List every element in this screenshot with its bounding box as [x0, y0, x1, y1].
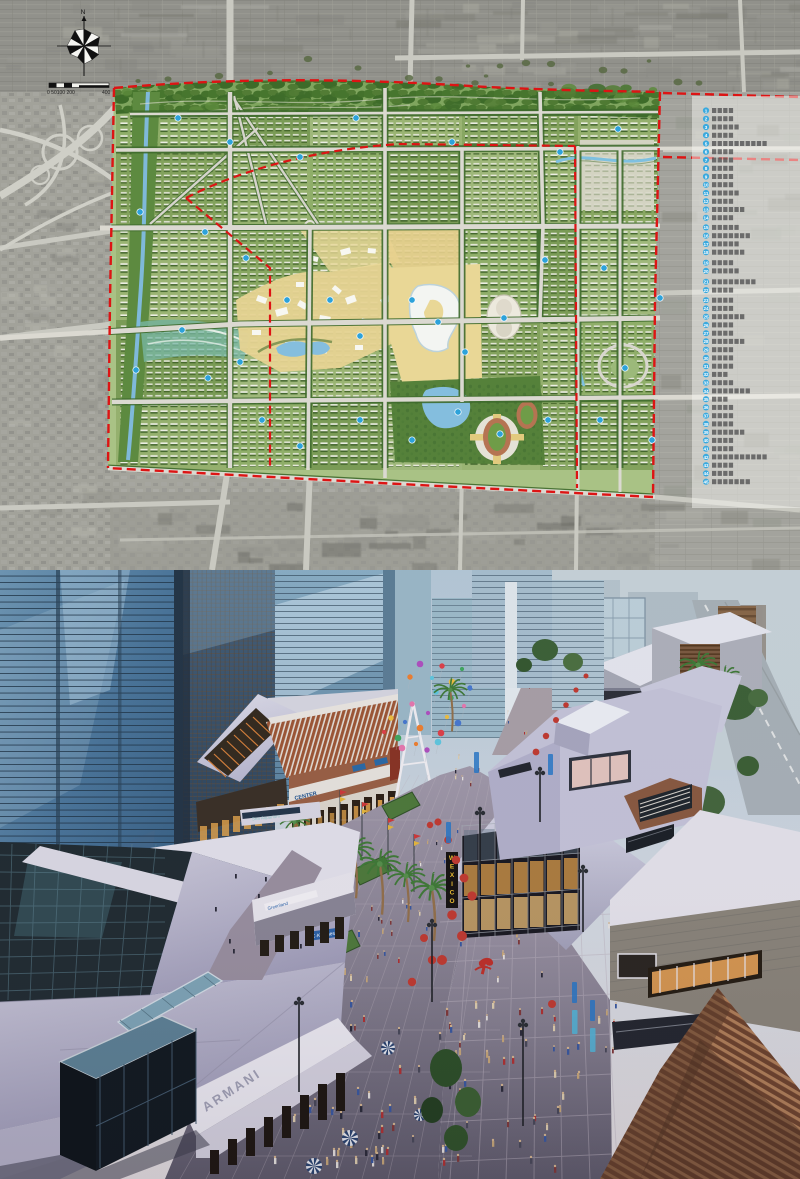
svg-text:42: 42	[703, 455, 709, 460]
svg-text:24: 24	[703, 306, 709, 311]
svg-text:38: 38	[703, 422, 709, 427]
svg-text:23: 23	[703, 298, 709, 303]
svg-text:29: 29	[703, 348, 709, 353]
svg-text:9: 9	[705, 174, 708, 179]
svg-text:37: 37	[703, 414, 709, 419]
svg-text:34: 34	[703, 389, 709, 394]
svg-text:21: 21	[703, 280, 709, 285]
svg-text:18: 18	[703, 250, 709, 255]
svg-text:28: 28	[703, 339, 709, 344]
svg-text:27: 27	[703, 331, 709, 336]
svg-text:6: 6	[705, 150, 708, 155]
svg-text:33: 33	[703, 381, 709, 386]
svg-text:7: 7	[705, 158, 708, 163]
svg-text:17: 17	[703, 242, 709, 247]
svg-text:10: 10	[703, 183, 709, 188]
svg-text:19: 19	[703, 261, 709, 266]
svg-text:4: 4	[705, 133, 708, 138]
svg-text:N: N	[81, 9, 86, 16]
svg-text:30: 30	[703, 356, 709, 361]
svg-text:20: 20	[703, 269, 709, 274]
svg-text:26: 26	[703, 323, 709, 328]
svg-text:25: 25	[703, 315, 709, 320]
svg-text:32: 32	[703, 372, 709, 377]
svg-text:5: 5	[705, 141, 708, 146]
svg-text:8: 8	[705, 166, 708, 171]
svg-text:1: 1	[705, 108, 708, 113]
svg-text:22: 22	[703, 288, 709, 293]
svg-text:16: 16	[703, 234, 709, 239]
svg-text:3: 3	[705, 125, 708, 130]
svg-text:31: 31	[703, 364, 709, 369]
svg-text:11: 11	[704, 191, 709, 196]
svg-text:43: 43	[703, 463, 709, 468]
svg-text:41: 41	[703, 447, 709, 452]
svg-text:400: 400	[102, 90, 111, 96]
svg-text:36: 36	[703, 405, 709, 410]
svg-text:40: 40	[703, 438, 709, 443]
svg-text:15: 15	[703, 225, 709, 230]
svg-text:39: 39	[703, 430, 709, 435]
svg-text:13: 13	[703, 207, 709, 212]
svg-text:0 50100 200: 0 50100 200	[47, 90, 75, 96]
svg-text:45: 45	[703, 480, 709, 485]
svg-text:12: 12	[703, 199, 709, 204]
svg-text:2: 2	[705, 117, 708, 122]
svg-text:14: 14	[703, 216, 709, 221]
svg-text:44: 44	[703, 471, 709, 476]
svg-text:35: 35	[703, 397, 709, 402]
